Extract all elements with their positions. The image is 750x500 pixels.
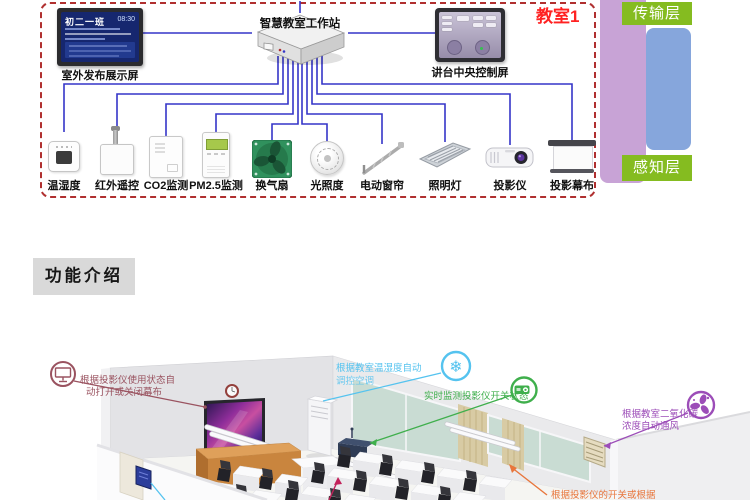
ceiling-light-icon <box>417 140 473 174</box>
svg-text:浓度自动通风: 浓度自动通风 <box>622 420 680 432</box>
svg-text:实时监测投影仪开关状态: 实时监测投影仪开关状态 <box>424 390 529 402</box>
projector-icon <box>485 143 535 171</box>
ventilation-fan-icon <box>252 140 292 178</box>
workstation-box <box>250 4 350 68</box>
co2-monitor-icon <box>149 136 183 178</box>
svg-text:根据投影仪使用状态自: 根据投影仪使用状态自 <box>80 374 175 386</box>
smart-classroom-product-page: { "architecture": { "classroom_tag": "教室… <box>0 0 750 500</box>
outdoor-display-screen: 初二一班 08:30 <box>57 8 143 66</box>
pm25-monitor-icon <box>202 132 230 178</box>
device-caption: 投影幕布 <box>532 177 612 193</box>
svg-text:调控空调: 调控空调 <box>336 375 374 387</box>
light-sensor-icon <box>310 141 344 175</box>
podium-control-screen <box>435 8 505 62</box>
svg-text:根据教室温湿度自动: 根据教室温湿度自动 <box>336 362 422 374</box>
svg-text:根据教室二氧化碳: 根据教室二氧化碳 <box>622 408 699 420</box>
class-name-text: 初二一班 <box>65 15 105 28</box>
podium-screen-caption: 讲台中央控制屏 <box>428 64 512 80</box>
notice-panel <box>65 42 135 58</box>
workstation-caption: 智慧教室工作站 <box>252 15 348 31</box>
section-header: 功能介绍 <box>33 258 135 295</box>
classroom-3d-illustration: 根据投影仪使用状态自 动打开或关闭幕布 ❄ 根据教室温湿度自动 调控空调 实时监… <box>0 340 750 500</box>
outdoor-display-caption: 室外发布展示屏 <box>50 67 150 83</box>
dial-left <box>447 40 462 55</box>
svg-text:根据投影仪的开关或根据: 根据投影仪的开关或根据 <box>551 489 656 500</box>
snowflake-icon: ❄ <box>449 359 462 376</box>
svg-text:动打开或关闭幕布: 动打开或关闭幕布 <box>86 386 162 398</box>
control-ui <box>439 12 501 58</box>
clock-text: 08:30 <box>117 16 135 23</box>
outdoor-display-panel: 初二一班 08:30 <box>61 12 139 62</box>
temperature-humidity-sensor-icon <box>48 141 80 172</box>
electric-curtain-icon <box>359 138 405 178</box>
